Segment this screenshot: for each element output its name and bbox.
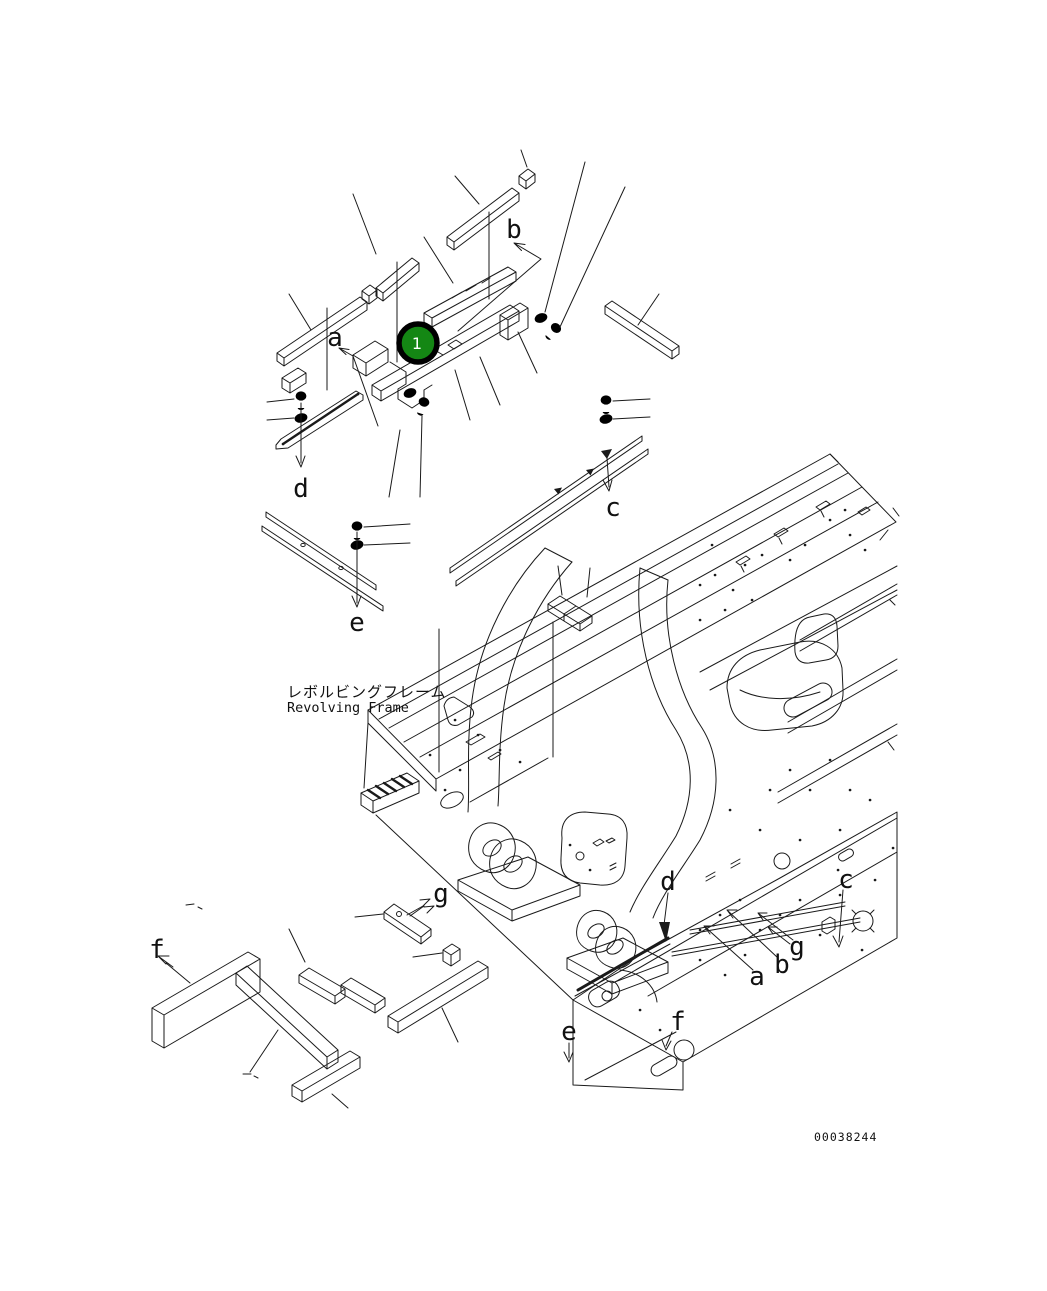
callout-frame-b: b [774, 950, 790, 980]
right-bar-part [605, 301, 679, 359]
mounting-rail-assembly [372, 267, 528, 408]
part-1-balloon-number: 1 [412, 334, 422, 353]
frame-label-english: Revolving Frame [287, 700, 409, 716]
callout-bottom-g: g [433, 879, 449, 909]
small-block-part [362, 285, 377, 304]
callout-bottom-f: f [149, 935, 165, 965]
leader-lines-top [267, 150, 659, 545]
small-step-block [282, 368, 306, 393]
callout-arrows-top [296, 243, 612, 607]
part-1-balloon[interactable]: 1 [399, 324, 437, 362]
right-long-bar-part [388, 961, 488, 1033]
parts-catalog-page: a b c d e [0, 0, 1047, 1291]
tall-plate-part [152, 952, 260, 1048]
top-cube-part [519, 169, 535, 189]
callout-frame-d: d [660, 867, 676, 897]
angle-bracket-part [439, 566, 592, 772]
callout-arrows-frame [564, 890, 843, 1080]
exploded-parts-diagram: a b c d e [0, 0, 1047, 1291]
callout-frame-e: e [561, 1017, 577, 1047]
lower-deck [573, 812, 897, 1090]
drawing-number: 00038244 [814, 1130, 877, 1144]
small-cube-part [443, 944, 460, 966]
top-exploded-parts-group: a b c d e [262, 150, 679, 638]
right-boom-mount [567, 910, 668, 994]
revolving-frame-drawing: d c g b a e f [361, 454, 899, 1090]
notched-bar-part-2 [341, 978, 385, 1013]
callout-top-e: e [349, 608, 365, 638]
crossmember-plate [727, 614, 843, 731]
callout-frame-g: g [789, 932, 805, 962]
callout-top-a: a [327, 323, 343, 353]
left-deck-details [361, 697, 573, 1000]
callout-frame-a: a [749, 962, 765, 992]
notched-bar-part-1 [299, 968, 345, 1004]
bottom-bar-part [292, 1051, 360, 1102]
bottom-left-parts-group: f g [149, 879, 488, 1108]
callout-frame-f: f [670, 1007, 686, 1037]
upper-deck [364, 454, 897, 802]
frame-label-japanese: レボルビングフレーム [287, 683, 447, 701]
right-rails [730, 508, 899, 848]
center-plate [561, 812, 627, 885]
long-bar-part [236, 966, 338, 1069]
callout-top-d: d [293, 474, 309, 504]
callout-frame-c: c [838, 865, 854, 895]
callout-top-c: c [605, 493, 621, 523]
callout-arrows-bottom [158, 899, 434, 983]
pad-part-g [384, 904, 431, 944]
callout-top-b: b [506, 215, 522, 245]
